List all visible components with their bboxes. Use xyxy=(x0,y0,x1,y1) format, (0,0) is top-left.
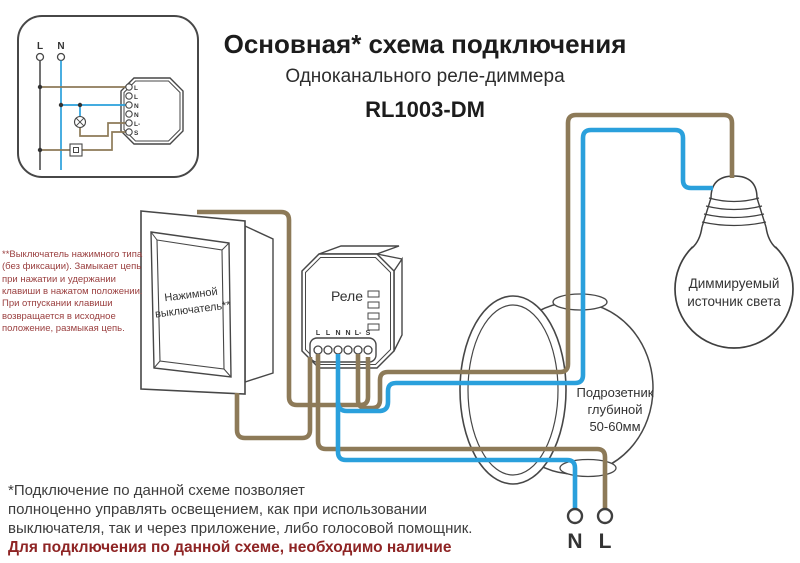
svg-text:L: L xyxy=(134,85,138,92)
mains-terminals: N L xyxy=(567,509,612,553)
bulb-label: Диммируемый источник света xyxy=(677,275,791,311)
svg-text:L: L xyxy=(316,330,321,337)
model-number: RL1003-DM xyxy=(190,97,660,123)
dimmable-bulb xyxy=(675,176,793,348)
svg-text:L-: L- xyxy=(134,121,140,128)
mains-n-label: N xyxy=(567,530,582,553)
mains-n-terminal xyxy=(568,509,582,523)
neutral-required-warning: Для подключения по данной схеме, необход… xyxy=(8,538,488,558)
svg-text:N: N xyxy=(345,330,350,337)
inset-schematic: L N xyxy=(18,16,198,177)
svg-text:S: S xyxy=(366,330,371,337)
page-title: Основная* схема подключения xyxy=(190,30,660,59)
relay-label: Реле xyxy=(331,288,363,304)
svg-text:L: L xyxy=(326,330,331,337)
svg-text:N: N xyxy=(134,103,139,110)
inset-lamp-return xyxy=(80,123,126,136)
mains-l-terminal xyxy=(598,509,612,523)
mounting-box-label: Подрозетник глубиной 50-60мм xyxy=(563,385,667,436)
wiring-diagram-page: L N xyxy=(0,0,800,563)
svg-text:L-: L- xyxy=(355,330,362,337)
live-wires xyxy=(197,115,732,509)
box-top-grommet xyxy=(553,294,607,310)
inset-pushbutton-icon xyxy=(70,144,82,156)
inset-l-label: L xyxy=(37,41,43,52)
mains-l-label: L xyxy=(599,530,612,553)
page-subtitle: Одноканального реле-диммера xyxy=(190,66,660,88)
inset-switch-return xyxy=(82,132,126,150)
svg-text:N: N xyxy=(134,112,139,119)
inset-n-label: N xyxy=(57,41,64,52)
svg-text:L: L xyxy=(134,94,138,101)
title-block: Основная* схема подключения Одноканально… xyxy=(190,30,660,123)
inset-lamp-icon xyxy=(75,117,86,128)
svg-text:S: S xyxy=(134,130,139,137)
svg-text:N: N xyxy=(335,330,340,337)
relay-module: Реле L L N N L- S xyxy=(302,246,402,368)
switch-type-note: **Выключатель нажимного типа (без фиксац… xyxy=(2,249,144,335)
connection-footnote: *Подключение по данной схеме позволяет п… xyxy=(8,481,488,563)
